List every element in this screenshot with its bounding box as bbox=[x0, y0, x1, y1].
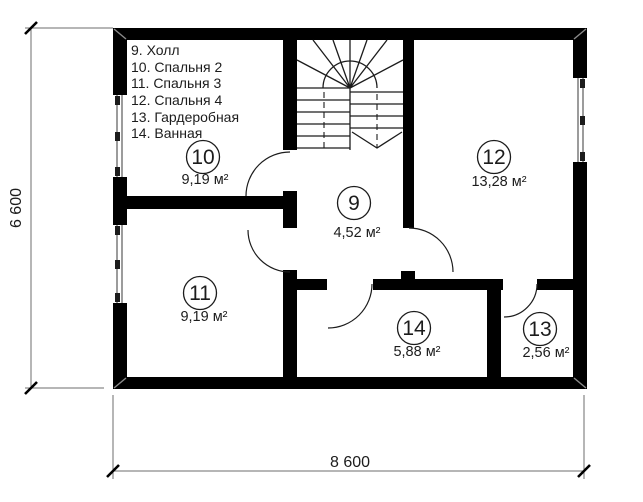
room-number: 9 bbox=[348, 192, 360, 215]
room-area: 5,88 м² bbox=[393, 344, 440, 360]
right-wall-segment bbox=[573, 162, 587, 389]
legend-item: 9. Холл bbox=[131, 42, 180, 58]
legend: 9. Холл 10. Спальня 2 11. Спальня 3 12. … bbox=[131, 42, 239, 141]
room-label-12: 12 13,28 м² bbox=[471, 141, 526, 191]
legend-item: 11. Спальня 3 bbox=[131, 75, 221, 91]
left-wall-segment bbox=[113, 303, 127, 389]
legend-item: 13. Гардеробная bbox=[131, 109, 239, 125]
wall-cap bbox=[283, 191, 297, 228]
room-label-10: 10 9,19 м² bbox=[181, 141, 228, 189]
door-arc-room13 bbox=[504, 284, 537, 317]
room-label-13: 13 2,56 м² bbox=[522, 313, 569, 362]
door-arc-room11 bbox=[248, 230, 290, 272]
room-area: 13,28 м² bbox=[471, 174, 526, 190]
dimension-lines: 6 600 8 600 bbox=[8, 22, 590, 479]
window-room10 bbox=[113, 95, 127, 177]
floor-plan: 6 600 8 600 bbox=[0, 0, 643, 502]
room-number: 14 bbox=[402, 317, 426, 340]
room-number: 13 bbox=[528, 318, 551, 341]
room-area: 9,19 м² bbox=[181, 172, 228, 188]
stairwell-left-wall bbox=[283, 40, 297, 150]
room14-top-wall-segment bbox=[373, 279, 503, 290]
window-room11 bbox=[113, 225, 127, 303]
room13-top-wall-segment bbox=[537, 279, 575, 290]
width-dimension-label: 8 600 bbox=[330, 454, 370, 471]
floor-plan-drawing: 6 600 8 600 bbox=[0, 0, 643, 502]
bottom-wall bbox=[113, 377, 587, 389]
door-arc-room14 bbox=[328, 284, 372, 328]
door-arc-room10 bbox=[246, 152, 290, 196]
room-area: 9,19 м² bbox=[180, 309, 227, 325]
stairwell-right-wall bbox=[403, 40, 414, 228]
right-wall-segment bbox=[573, 28, 587, 78]
staircase bbox=[297, 40, 403, 150]
legend-item: 14. Ванная bbox=[131, 125, 202, 141]
room-label-11: 11 9,19 м² bbox=[180, 277, 227, 326]
window-room12 bbox=[573, 78, 587, 162]
legend-item: 10. Спальня 2 bbox=[131, 59, 222, 75]
room10-11-divider-wall bbox=[113, 196, 285, 209]
room13-14-divider-wall bbox=[487, 279, 501, 377]
room-number: 10 bbox=[191, 146, 214, 169]
room-area: 2,56 м² bbox=[522, 345, 569, 361]
top-wall bbox=[113, 28, 587, 40]
height-dimension-label: 6 600 bbox=[8, 188, 25, 228]
legend-item: 12. Спальня 4 bbox=[131, 92, 222, 108]
room11-14-divider-wall bbox=[283, 270, 297, 377]
door-arc-room12 bbox=[409, 228, 453, 272]
room-number: 11 bbox=[189, 282, 211, 305]
room14-top-wall-segment bbox=[297, 279, 327, 290]
room-labels: 9 4,52 м² 10 9,19 м² 11 9,19 м² 12 13,28… bbox=[180, 141, 569, 362]
room-label-14: 14 5,88 м² bbox=[393, 312, 440, 361]
door-hinge-stub bbox=[401, 271, 415, 280]
room-area: 4,52 м² bbox=[333, 225, 380, 241]
room-number: 12 bbox=[482, 146, 505, 169]
room-label-9: 9 4,52 м² bbox=[333, 187, 380, 242]
